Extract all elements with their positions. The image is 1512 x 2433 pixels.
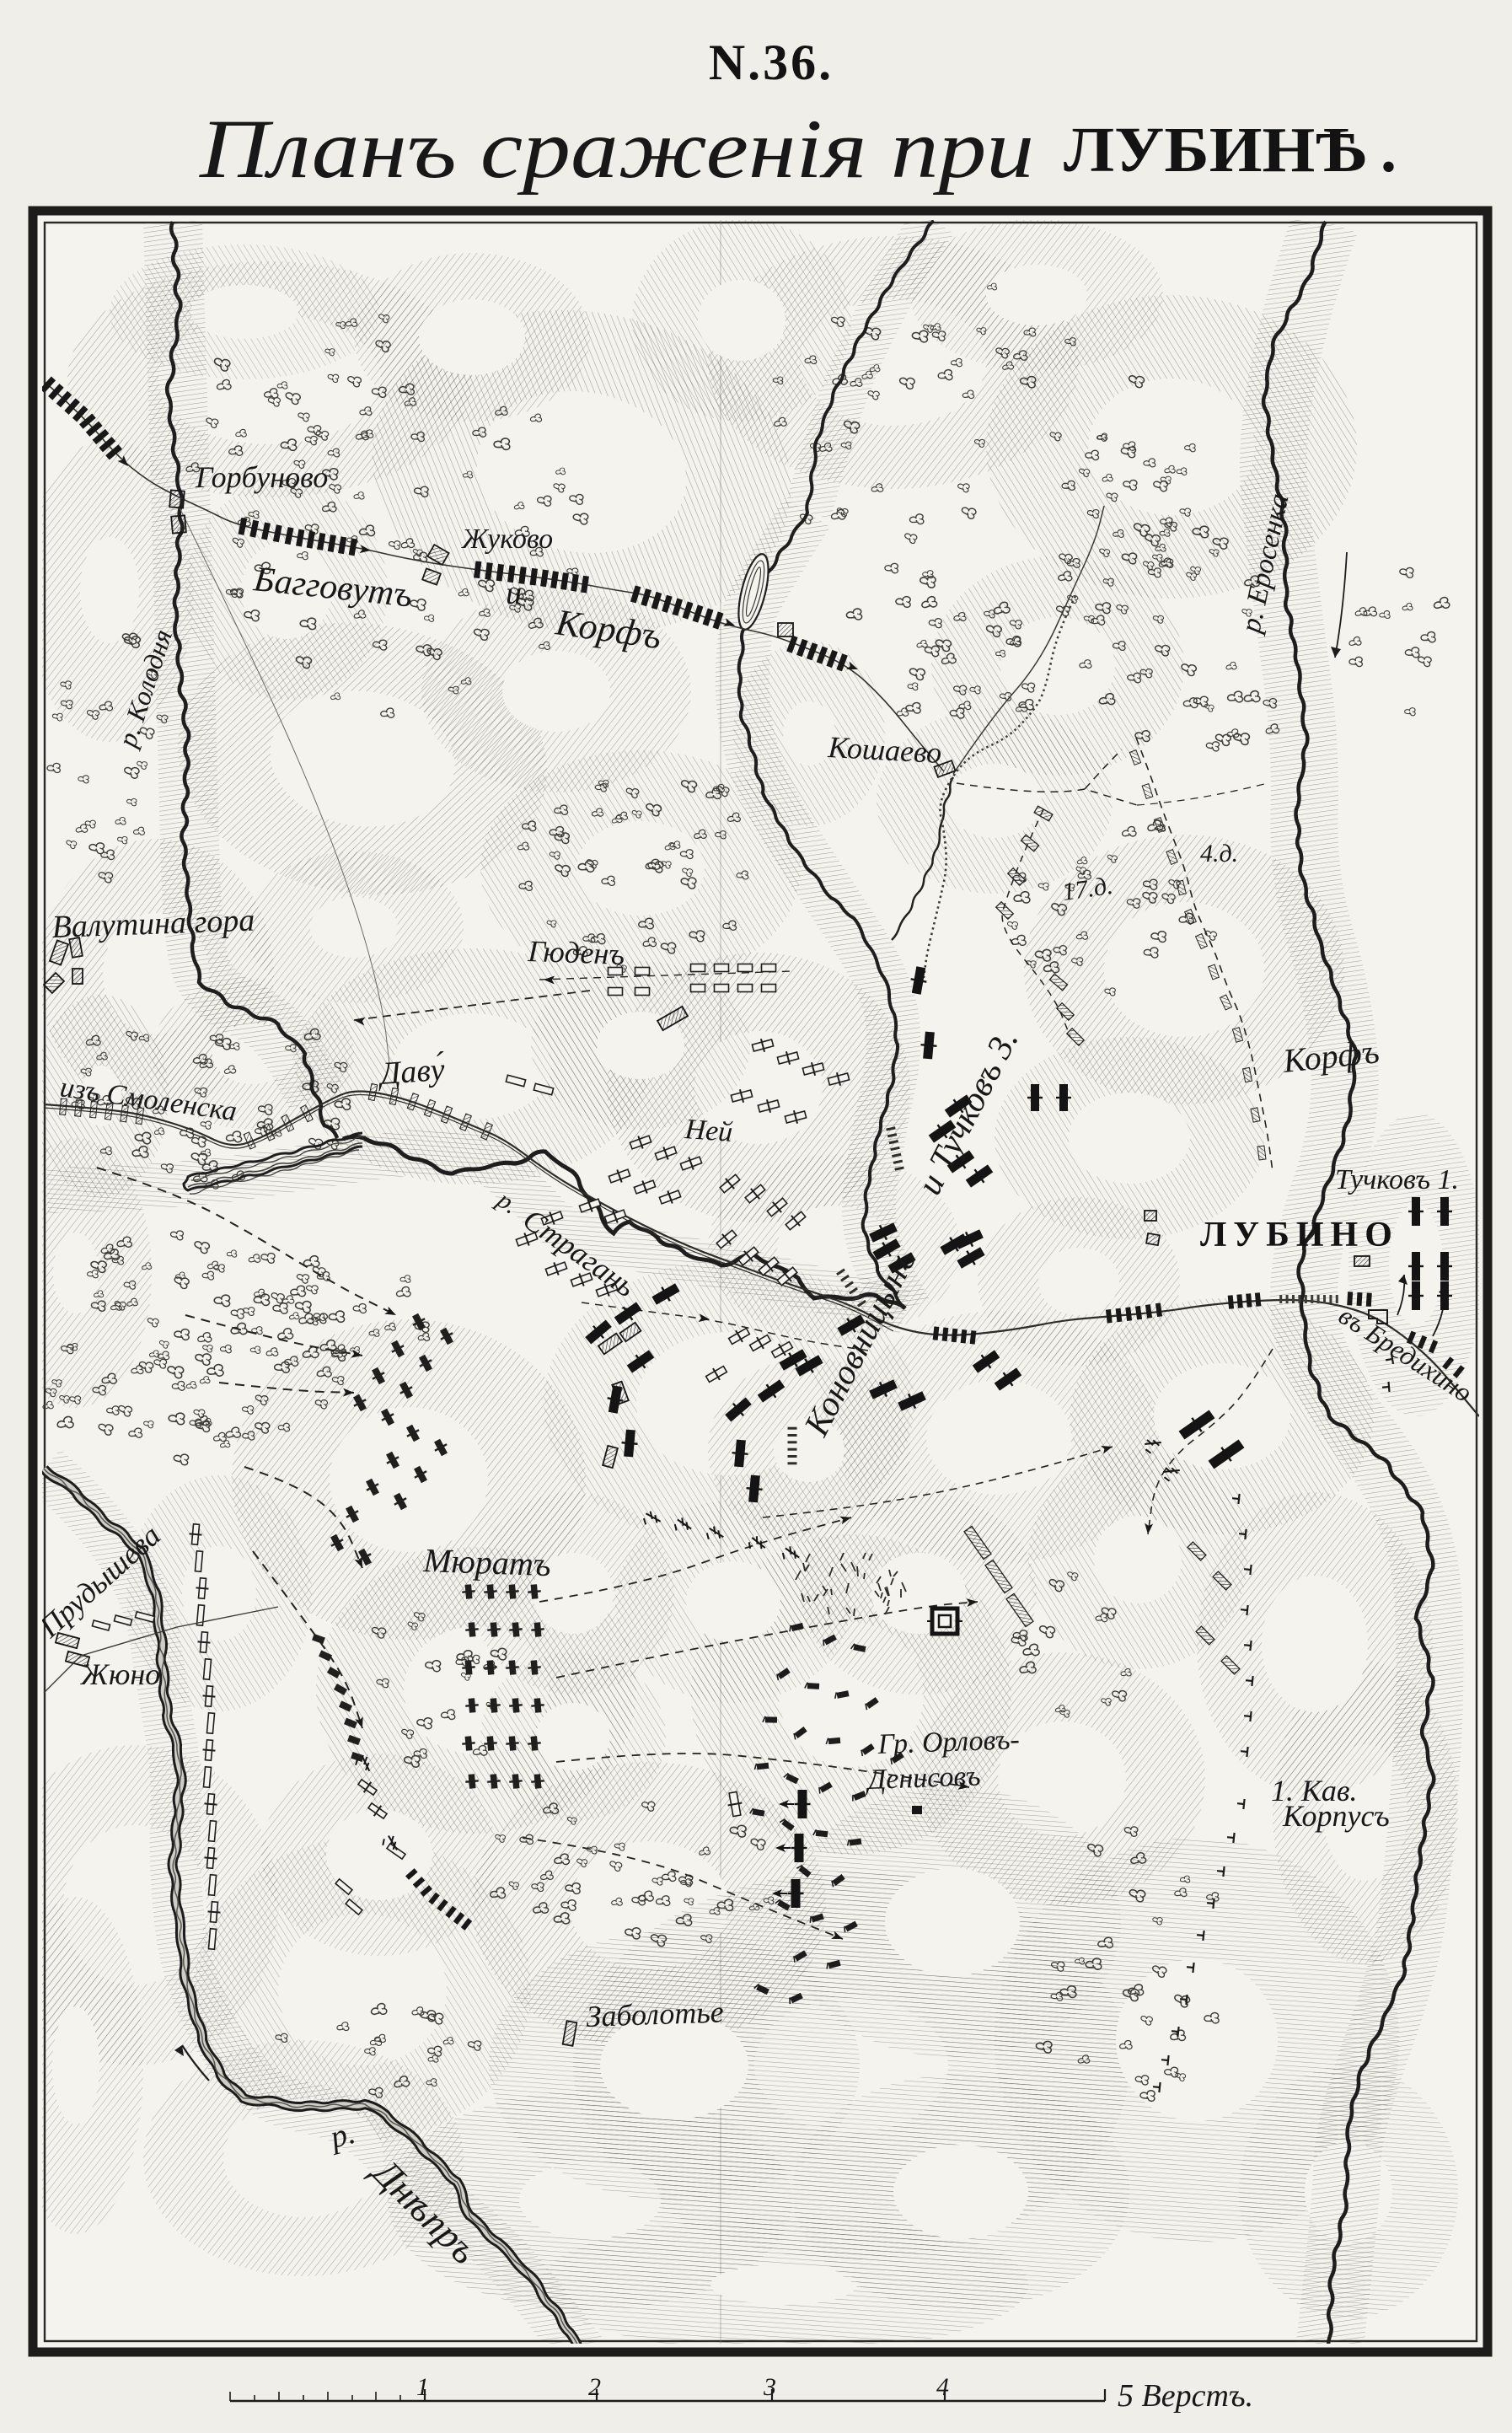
- svg-text:Гр. Орловъ-: Гр. Орловъ-: [877, 1724, 1020, 1760]
- svg-text:Кошаево: Кошаево: [827, 730, 943, 770]
- svg-text:1: 1: [416, 2373, 429, 2401]
- svg-text:Тучковъ 1.: Тучковъ 1.: [1335, 1164, 1459, 1195]
- svg-text:и: и: [506, 576, 522, 611]
- svg-text:Валутина гора: Валутина гора: [51, 903, 255, 945]
- svg-text:Заболотье: Заболотье: [586, 1995, 724, 2033]
- svg-text:Даву́: Даву́: [377, 1051, 447, 1093]
- svg-text:Жуково: Жуково: [461, 524, 553, 555]
- svg-text:Планъ сраженія при: Планъ сраженія при: [199, 102, 1034, 196]
- svg-text:N.36.: N.36.: [709, 35, 834, 90]
- svg-text:Корпусъ: Корпусъ: [1282, 1799, 1390, 1833]
- svg-text:.: .: [1381, 115, 1397, 185]
- svg-text:ЛУБИНО: ЛУБИНО: [1200, 1216, 1399, 1254]
- svg-text:Денисовъ: Денисовъ: [865, 1760, 981, 1796]
- svg-text:Горбуново: Горбуново: [195, 460, 328, 494]
- svg-text:Мюратъ: Мюратъ: [422, 1541, 552, 1583]
- svg-text:ЛУБИНѢ: ЛУБИНѢ: [1064, 115, 1367, 185]
- svg-text:4.д.: 4.д.: [1200, 840, 1238, 867]
- svg-text:Ней: Ней: [683, 1114, 733, 1148]
- svg-text:2: 2: [588, 2373, 601, 2401]
- svg-text:4: 4: [936, 2373, 949, 2401]
- svg-text:Жюно: Жюно: [80, 1657, 160, 1691]
- svg-text:3: 3: [763, 2373, 776, 2401]
- svg-text:5 Верстъ.: 5 Верстъ.: [1118, 2378, 1253, 2414]
- svg-text:Гюденъ: Гюденъ: [527, 934, 625, 971]
